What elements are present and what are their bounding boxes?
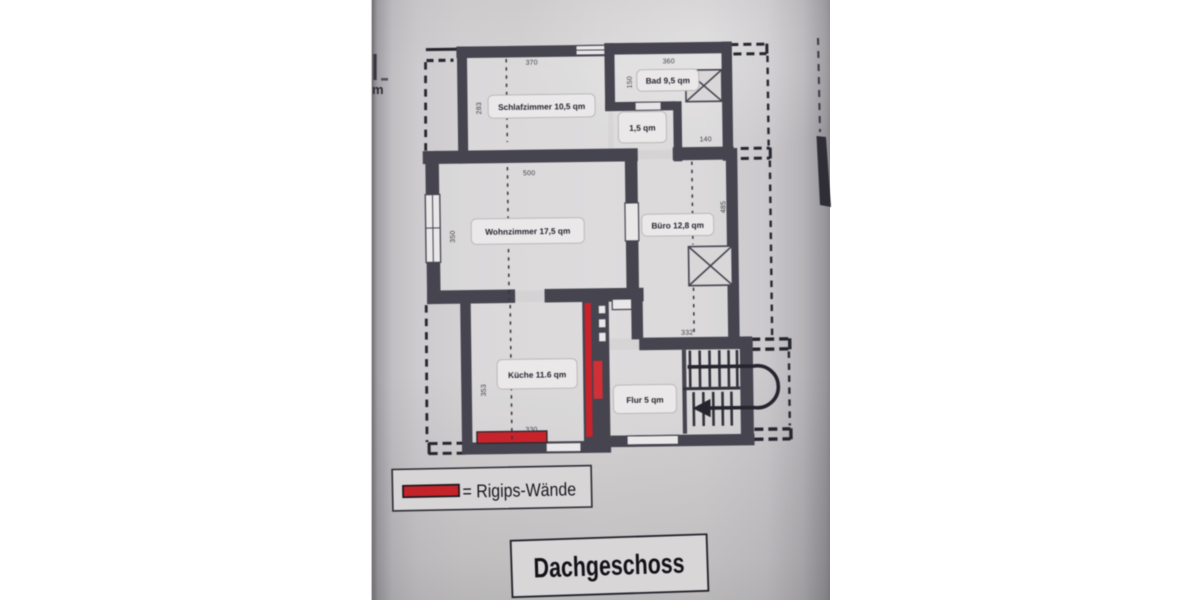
svg-text:Flur 5 qm: Flur 5 qm bbox=[626, 394, 663, 404]
svg-text:150: 150 bbox=[627, 76, 634, 88]
svg-text:Küche 11.6 qm: Küche 11.6 qm bbox=[508, 369, 566, 380]
svg-text:Büro 12,8 qm: Büro 12,8 qm bbox=[651, 220, 704, 231]
svg-text:140: 140 bbox=[700, 136, 712, 143]
svg-text:m: m bbox=[372, 82, 384, 97]
svg-text:485: 485 bbox=[720, 201, 727, 213]
svg-text:350: 350 bbox=[450, 230, 457, 242]
svg-text:353: 353 bbox=[481, 384, 488, 396]
svg-text:Bad 9,5 qm: Bad 9,5 qm bbox=[646, 75, 690, 86]
svg-text:Dachgeschoss: Dachgeschoss bbox=[533, 548, 685, 584]
svg-text:= Rigips-Wände: = Rigips-Wände bbox=[462, 478, 576, 501]
svg-text:500: 500 bbox=[523, 170, 535, 177]
svg-text:332: 332 bbox=[681, 330, 693, 337]
svg-text:360: 360 bbox=[662, 58, 674, 65]
svg-text:283: 283 bbox=[476, 102, 483, 114]
svg-text:1,5 qm: 1,5 qm bbox=[629, 123, 655, 133]
svg-text:330: 330 bbox=[525, 427, 537, 434]
svg-text:370: 370 bbox=[526, 60, 538, 67]
svg-text:Wohnzimmer 17,5 qm: Wohnzimmer 17,5 qm bbox=[485, 226, 570, 237]
svg-text:Schlafzimmer 10,5 qm: Schlafzimmer 10,5 qm bbox=[498, 101, 585, 112]
